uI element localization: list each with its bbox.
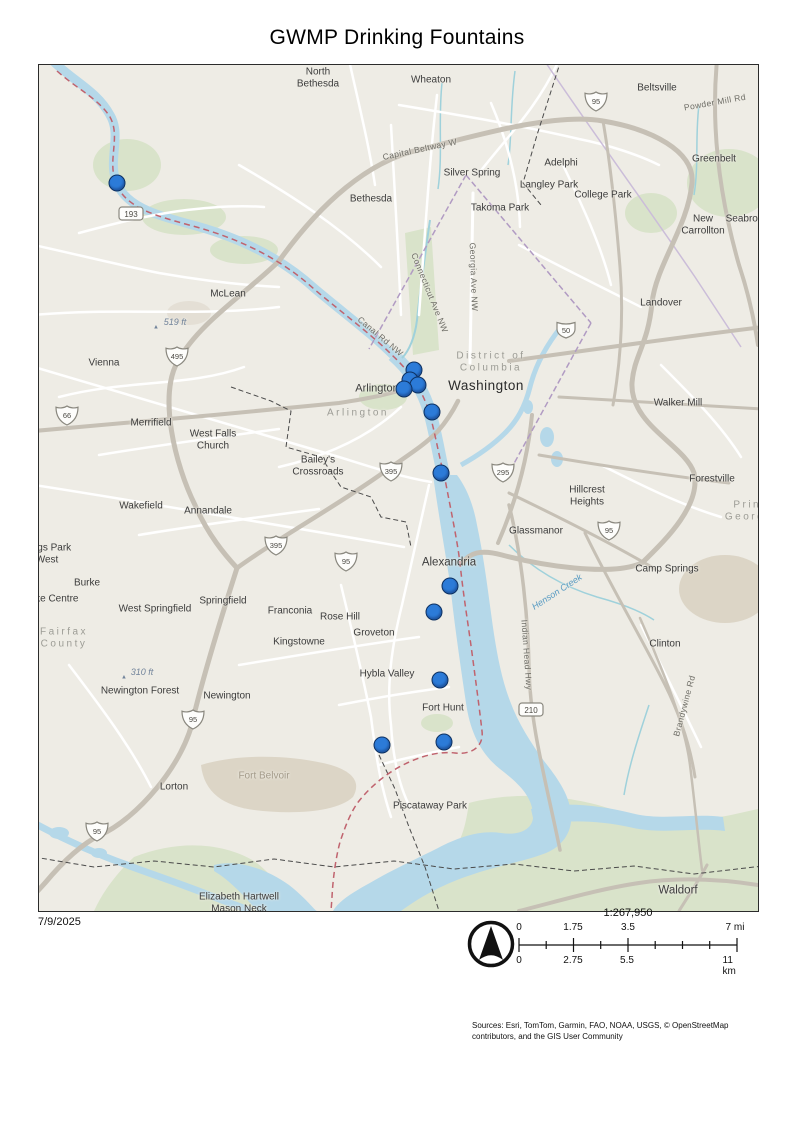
map-export-page: { "title": "GWMP Drinking Fountains", "f… <box>0 0 794 1123</box>
scale-bar-line <box>514 937 754 953</box>
scale-ratio: 1:267,950 <box>558 907 698 919</box>
scale-km-label: 11 km <box>723 955 744 977</box>
north-arrow-icon <box>466 919 516 969</box>
fountain-marker[interactable] <box>109 175 126 192</box>
fountain-marker[interactable] <box>433 465 450 482</box>
fountain-marker[interactable] <box>442 578 459 595</box>
scale-km-label: 5.5 <box>620 955 634 966</box>
fountain-marker[interactable] <box>396 381 413 398</box>
map-date: 7/9/2025 <box>38 916 81 928</box>
basemap <box>39 65 758 911</box>
fountain-marker[interactable] <box>436 734 453 751</box>
fountain-marker[interactable] <box>424 404 441 421</box>
scale-km-label: 2.75 <box>563 955 582 966</box>
sources-attribution: Sources: Esri, TomTom, Garmin, FAO, NOAA… <box>472 1021 772 1043</box>
scale-mi-label: 7 mi <box>726 922 745 933</box>
map-canvas: North BethesdaWheatonBeltsvillePowder Mi… <box>38 64 759 912</box>
fountain-marker[interactable] <box>426 604 443 621</box>
fountain-marker[interactable] <box>374 737 391 754</box>
scale-mi-label: 0 <box>516 922 522 933</box>
page-title: GWMP Drinking Fountains <box>0 26 794 50</box>
scale-bar: 0 1.75 3.5 7 mi 0 2.75 5.5 11 km <box>514 922 754 970</box>
fountain-marker[interactable] <box>432 672 449 689</box>
scale-mi-label: 3.5 <box>621 922 635 933</box>
scale-mi-label: 1.75 <box>563 922 582 933</box>
scale-km-label: 0 <box>516 955 522 966</box>
